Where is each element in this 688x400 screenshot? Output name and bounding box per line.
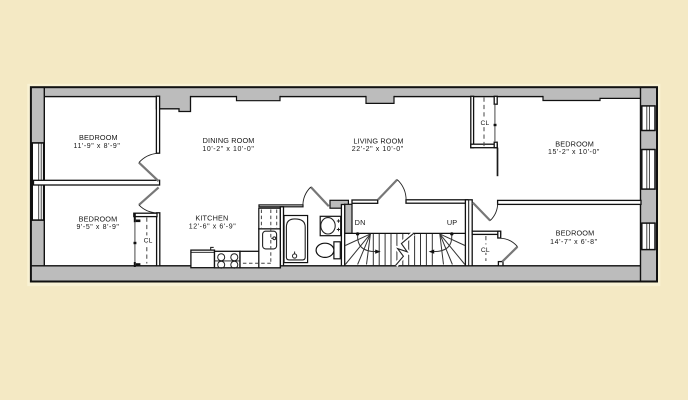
svg-text:10'-2" x 10'-0": 10'-2" x 10'-0" [202, 146, 254, 153]
svg-text:BEDROOM: BEDROOM [556, 228, 595, 237]
svg-text:22'-2" x 10'-0": 22'-2" x 10'-0" [352, 146, 404, 153]
svg-text:CL: CL [144, 238, 153, 245]
svg-text:LIVING ROOM: LIVING ROOM [353, 136, 403, 145]
svg-text:DN: DN [355, 218, 366, 227]
svg-text:BEDROOM: BEDROOM [555, 139, 594, 148]
svg-text:15'-2" x 10'-0": 15'-2" x 10'-0" [548, 149, 600, 156]
svg-text:KITCHEN: KITCHEN [195, 214, 228, 223]
svg-text:12'-6" x 6'-9": 12'-6" x 6'-9" [189, 223, 237, 230]
svg-text:11'-9" x 8'-9": 11'-9" x 8'-9" [73, 143, 120, 150]
svg-text:UP: UP [447, 218, 457, 227]
svg-text:14'-7" x 6'-8": 14'-7" x 6'-8" [550, 239, 598, 246]
svg-text:DINING ROOM: DINING ROOM [203, 136, 255, 145]
svg-text:BEDROOM: BEDROOM [79, 133, 118, 142]
svg-text:CL: CL [481, 120, 490, 127]
svg-text:CL: CL [481, 247, 490, 254]
svg-text:9'-5" x 8'-9": 9'-5" x 8'-9" [76, 224, 119, 231]
svg-text:BEDROOM: BEDROOM [79, 215, 118, 224]
